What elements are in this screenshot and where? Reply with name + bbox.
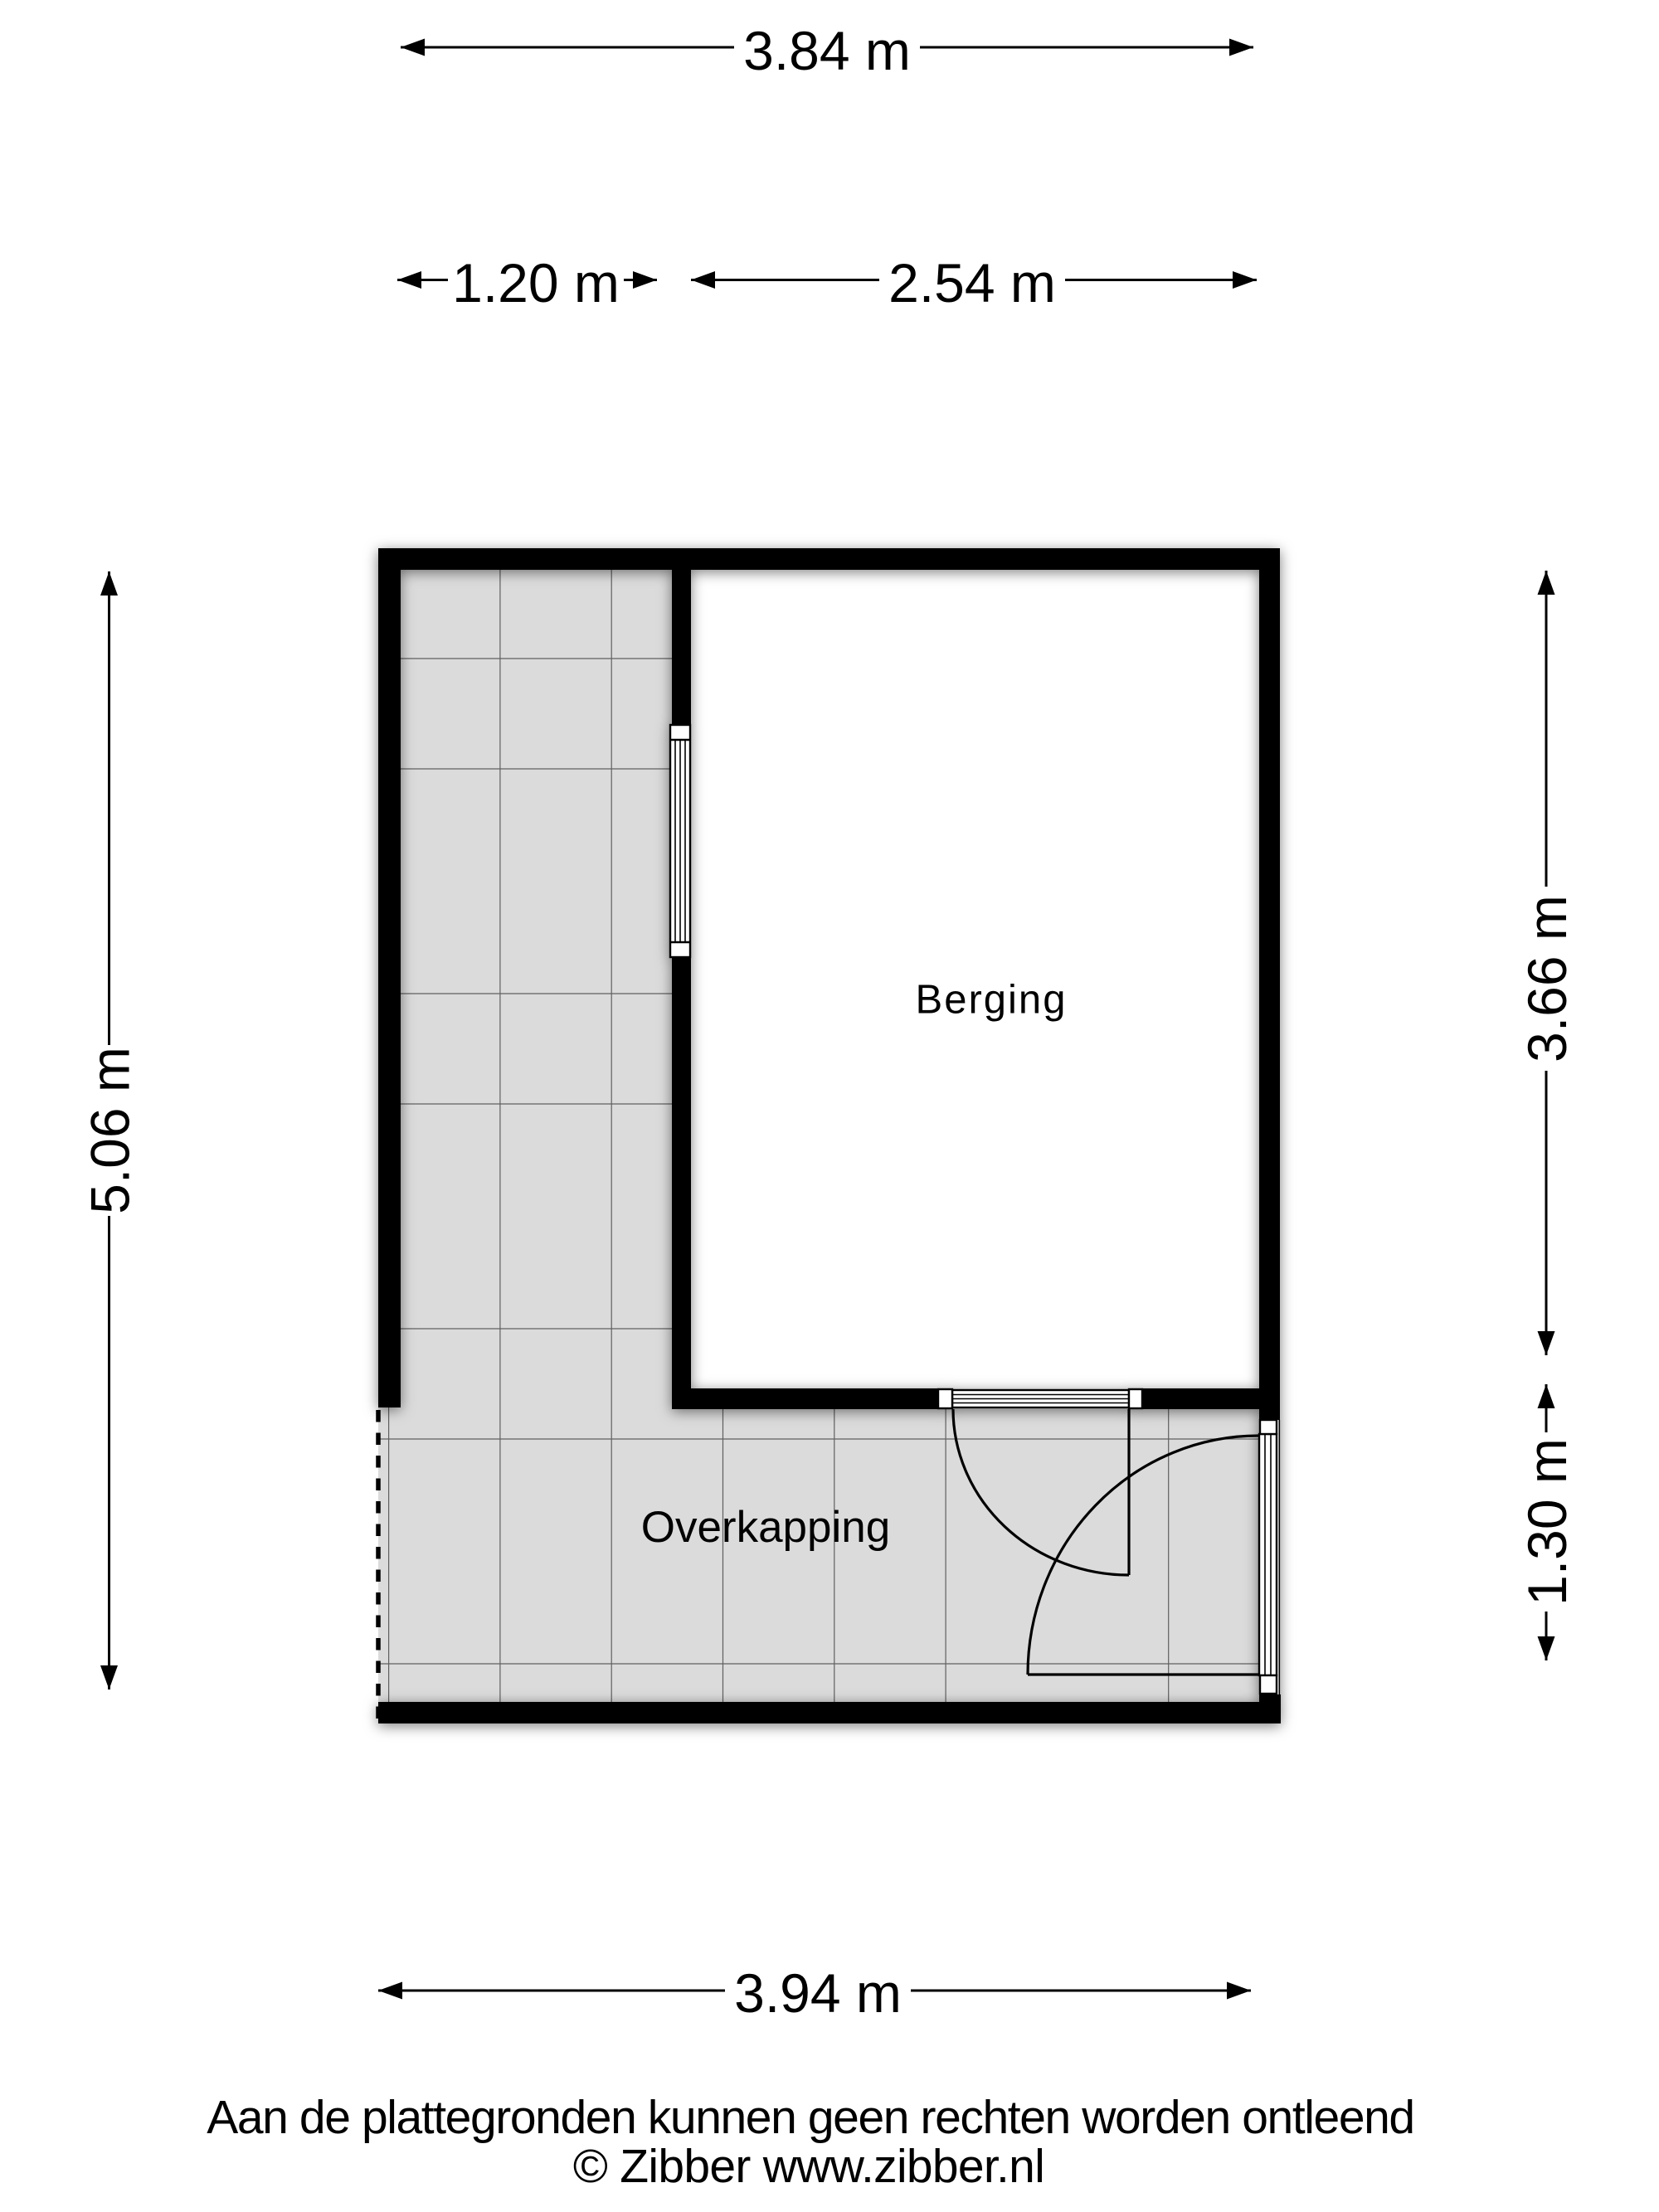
svg-text:3.94 m: 3.94 m xyxy=(734,1962,902,2024)
svg-text:Aan de plattegronden kunnen ge: Aan de plattegronden kunnen geen rechten… xyxy=(207,2091,1413,2144)
svg-text:1.30 m: 1.30 m xyxy=(1516,1438,1578,1606)
svg-text:5.06 m: 5.06 m xyxy=(80,1047,141,1214)
svg-text:© Zibber www.zibber.nl: © Zibber www.zibber.nl xyxy=(573,2140,1044,2193)
svg-text:1.20 m: 1.20 m xyxy=(452,252,620,314)
svg-text:Overkapping: Overkapping xyxy=(641,1503,891,1552)
svg-text:2.54 m: 2.54 m xyxy=(888,252,1056,314)
svg-text:3.66 m: 3.66 m xyxy=(1516,895,1578,1062)
svg-text:Berging: Berging xyxy=(916,978,1068,1023)
svg-text:3.84 m: 3.84 m xyxy=(743,20,911,81)
